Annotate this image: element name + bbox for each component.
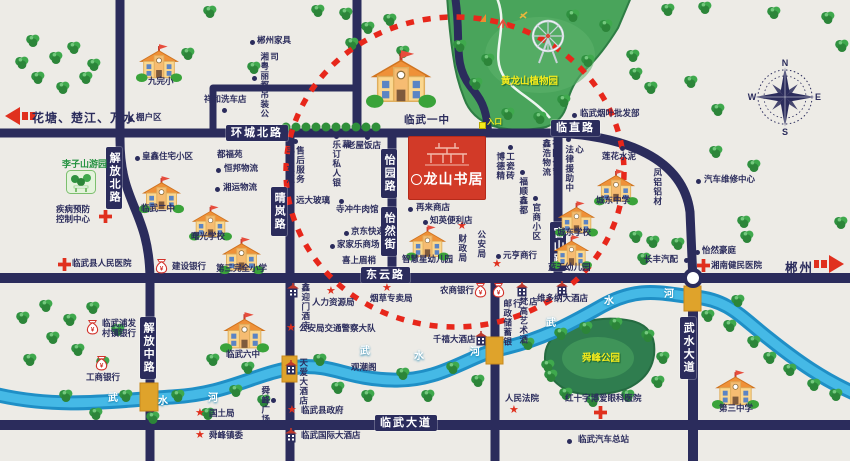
school-icon <box>220 312 269 353</box>
dot-icon <box>271 398 276 403</box>
road-label: 环城北路 <box>226 125 288 141</box>
place-label: 老屋饭店 <box>347 141 381 151</box>
place-label: 博德精工瓷砖 <box>495 152 515 182</box>
star-icon: ★ <box>195 408 207 420</box>
place-label: 元亨商行 <box>503 251 537 261</box>
logo-seal-icon <box>411 174 422 185</box>
place-label: 城东中学 <box>596 196 630 206</box>
place-label: 千禧大酒店 <box>433 335 476 345</box>
park-icon <box>66 170 96 194</box>
place-label: 长丰汽配 <box>644 255 678 265</box>
place-label: 舜峰镇委 <box>209 431 243 441</box>
place-label: 祥和洗车店 <box>204 95 247 105</box>
river-name-char: 河 <box>664 289 674 301</box>
bag-icon <box>86 319 99 335</box>
dot-icon <box>222 108 227 113</box>
dot-icon <box>684 258 689 263</box>
river-name-char: 河 <box>208 393 218 405</box>
place-label: 人力资源局 <box>312 298 355 308</box>
ydot-icon <box>479 122 486 129</box>
place-label: 远大玻璃 <box>296 196 330 206</box>
dot-icon <box>408 207 413 212</box>
place-label: 黄龙山植物园 <box>501 77 558 88</box>
hotel-icon <box>285 428 297 443</box>
place-label: 再来商店 <box>416 203 450 213</box>
place-label: 建设银行 <box>172 262 206 272</box>
place-label: 第三中学 <box>719 404 753 414</box>
bag-icon <box>155 258 168 274</box>
road-label: 武水大道 <box>680 317 696 379</box>
place-label: 汽车维修中心 <box>704 175 755 185</box>
place-label: 国土局 <box>209 409 235 419</box>
place-label: 维多纳大酒店 <box>537 294 588 304</box>
road-label: 临武大道 <box>375 415 437 431</box>
road-label: 解放中路 <box>140 317 156 379</box>
dot-icon <box>215 187 220 192</box>
place-label: 都福苑 <box>217 150 243 160</box>
river-name-char: 河 <box>470 347 480 359</box>
place-label: 福顺鑫都 <box>518 177 528 215</box>
place-label: 烟草专卖局 <box>370 294 413 304</box>
place-label: 临武烟叶批发部 <box>580 109 640 119</box>
dot-icon <box>496 254 501 259</box>
river-name-char: 武 <box>108 393 118 405</box>
direction-label-west: 花塘、楚江、万水 <box>32 109 136 126</box>
dot-icon <box>566 137 571 142</box>
place-label: 家家乐商场 <box>337 240 380 250</box>
dot-icon <box>330 244 335 249</box>
place-label: 京东快递 <box>351 227 385 237</box>
place-label: 喜上眉梢 <box>342 256 376 266</box>
dot-icon <box>520 170 525 175</box>
place-label: 城东学校 <box>557 228 591 238</box>
cross-icon <box>594 406 607 419</box>
place-label: 智慧星幼儿园 <box>402 255 453 265</box>
road-label: 解放北路 <box>106 147 122 209</box>
place-label: 湘粤丽都吊装公司 <box>259 52 279 124</box>
school-icon <box>366 50 436 109</box>
hotel-icon <box>475 331 487 346</box>
hotel-icon <box>287 283 299 298</box>
place-label: 怡然豪庭 <box>702 246 736 256</box>
bag-icon <box>492 282 505 298</box>
place-label: 舜峰广场 <box>260 386 270 424</box>
place-label: 公安局交通警察大队 <box>299 324 376 334</box>
road-label: 晴岚路 <box>271 187 287 236</box>
place-label: 莲花水泥 <box>602 152 636 162</box>
dot-icon <box>135 156 140 161</box>
hotel-icon <box>285 360 297 375</box>
place-label: 临武二中 <box>141 204 175 214</box>
place-label: 李子山游园 <box>62 159 107 169</box>
cross-icon <box>99 210 112 223</box>
road-label: 怡园路 <box>381 149 397 198</box>
road-label: 临直路 <box>551 120 600 136</box>
place-label: 红十字博爱眼科医院 <box>565 394 642 404</box>
place-label: 寺冲牛肉馆 <box>336 205 379 215</box>
bag-icon <box>474 282 487 298</box>
place-label: 疾病预防 控制中心 <box>56 205 90 225</box>
place-label: 知英便利店 <box>430 216 473 226</box>
place-label: 鑫浩物流有限公司 <box>541 139 561 177</box>
place-label: 曙光学校 <box>191 232 225 242</box>
place-label: 临武六中 <box>226 350 260 360</box>
dot-icon <box>572 113 577 118</box>
place-label: 法律援助中心 <box>564 145 584 199</box>
place-label: 湘运物流 <box>223 183 257 193</box>
place-label: 恒邦物流 <box>224 164 258 174</box>
bag-icon <box>95 355 108 371</box>
dot-icon <box>508 145 513 150</box>
place-label: 临武县人民医院 <box>72 259 132 269</box>
dot-icon <box>533 196 538 201</box>
map-canvas: ¥ <box>0 0 850 461</box>
place-label: 公安局 <box>476 230 486 260</box>
dot-icon <box>344 231 349 236</box>
project-logo-badge: 龙山书居 <box>408 136 486 200</box>
place-label: 人民法院 <box>505 394 539 404</box>
place-label: 财政局 <box>457 234 467 264</box>
place-label: 丰名车汇售后服务 <box>285 146 305 186</box>
place-label: 凤铝铝材 <box>652 168 662 206</box>
place-label: 临武县政府 <box>301 406 344 416</box>
road-label: 东云路 <box>361 267 410 283</box>
cross-icon <box>697 259 710 272</box>
star-icon: ★ <box>287 405 299 417</box>
direction-label-east: 郴州 <box>785 257 814 276</box>
hotel-icon <box>516 282 528 297</box>
dot-icon <box>252 76 257 81</box>
dot-icon <box>696 179 701 184</box>
dot-icon <box>695 250 700 255</box>
star-icon: ★ <box>286 323 298 335</box>
place-label: 湘南健民医院 <box>711 261 762 271</box>
labels-layer: 九完小临武一中临武二中曙光学校第三完全小学智慧星幼儿园城东中学城东学校蓝天幼儿园… <box>0 0 850 461</box>
dot-icon <box>334 134 339 139</box>
dot-icon <box>423 220 428 225</box>
dot-icon <box>216 168 221 173</box>
dot-icon <box>250 40 255 45</box>
place-label: 临武一中 <box>404 114 450 126</box>
place-label: 观潮阁 <box>351 363 377 373</box>
project-name: 龙山书居 <box>424 169 484 189</box>
place-label: 梵高艺术酒店 <box>518 297 538 353</box>
place-label: 九完小 <box>148 77 174 87</box>
place-label: 蓝天幼儿园 <box>548 263 591 273</box>
place-label: 入口 <box>487 118 502 127</box>
place-label: 棚户区 <box>136 113 162 123</box>
cross-icon <box>58 258 71 271</box>
star-icon: ★ <box>492 259 504 271</box>
archway-icon <box>415 141 479 167</box>
place-label: 第三完全小学 <box>216 264 267 274</box>
place-label: 天爱大酒店 <box>298 358 308 406</box>
place-label: 舜峰公园 <box>582 354 620 365</box>
place-label: 临武国际大酒店 <box>301 431 361 441</box>
place-label: 官商小区 <box>531 203 541 241</box>
place-label: 工商银行 <box>86 373 120 383</box>
place-label: 临武汽车总站 <box>578 435 629 445</box>
dot-icon <box>293 139 298 144</box>
place-label: 临武浦发 村镇银行 <box>102 319 136 339</box>
river-name-char: 水 <box>158 396 168 408</box>
river-name-char: 武 <box>546 318 556 330</box>
river-name-char: 水 <box>414 351 424 363</box>
star-icon: ★ <box>195 430 207 442</box>
river-name-char: 水 <box>604 296 614 308</box>
river-name-char: 武 <box>360 346 370 358</box>
star-icon: ★ <box>509 405 521 417</box>
place-label: 皇鑫住宅小区 <box>142 152 193 162</box>
place-label: 农商银行 <box>440 286 474 296</box>
place-label: 郴州家具 <box>257 36 291 46</box>
dot-icon <box>392 208 397 213</box>
dot-icon <box>567 439 572 444</box>
